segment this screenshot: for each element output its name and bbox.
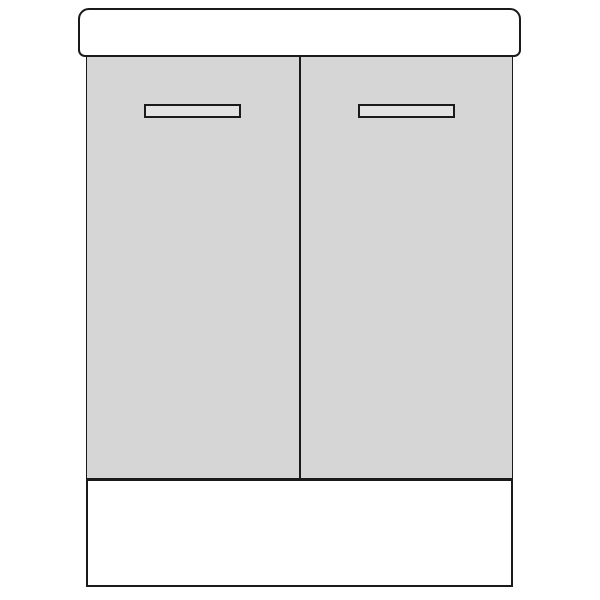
cabinet-doors [86, 54, 513, 479]
base-plinth-panel [86, 479, 513, 587]
right-cabinet-door [300, 54, 514, 479]
left-door-handle [144, 104, 241, 118]
countertop-top-panel [78, 8, 521, 57]
right-door-handle [358, 104, 455, 118]
left-cabinet-door [86, 54, 300, 479]
vanity-cabinet-illustration [0, 0, 600, 600]
